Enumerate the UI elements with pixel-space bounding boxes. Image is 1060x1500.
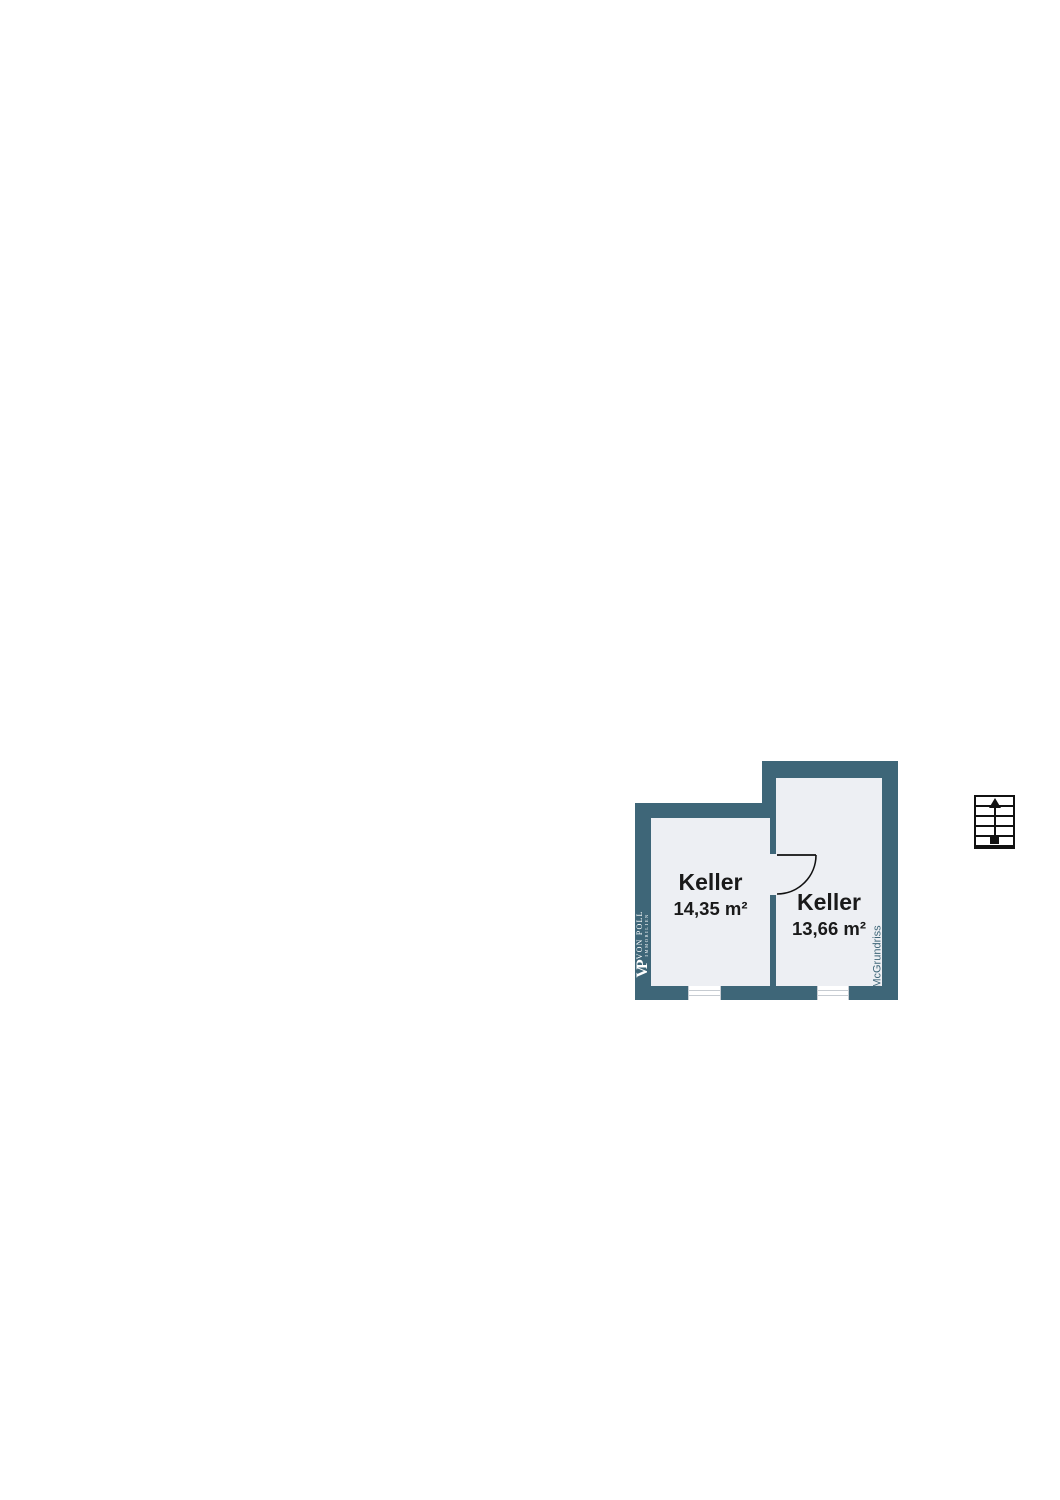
mcgrundriss-watermark: McGrundriss <box>872 917 885 997</box>
room-keller-left: Keller 14,35 m² <box>651 818 770 986</box>
room-label-left: Keller 14,35 m² <box>651 870 770 920</box>
window-icon <box>688 986 721 1000</box>
stair-start-marker <box>990 835 999 844</box>
stair-arrow-head <box>989 798 1001 808</box>
vp-wordmark: VON POLL IMMOBILIEN <box>636 910 650 959</box>
room-area: 14,35 m² <box>651 898 770 920</box>
staircase-up-arrow-icon <box>974 795 1015 849</box>
room-name: Keller <box>651 870 770 895</box>
room-area: 13,66 m² <box>776 918 882 940</box>
vp-monogram: VP <box>635 962 651 977</box>
window-icon <box>817 986 849 1000</box>
vonpoll-immobilien-logo: VP VON POLL IMMOBILIEN <box>635 900 651 988</box>
page-canvas: Keller 14,35 m² Keller 13,66 m² <box>0 0 1060 1500</box>
vp-suffix: IMMOBILIEN <box>645 913 650 957</box>
vp-name: VON POLL <box>636 910 644 959</box>
floorplan: Keller 14,35 m² Keller 13,66 m² <box>635 761 898 1000</box>
door-swing-arc-icon <box>769 849 829 901</box>
